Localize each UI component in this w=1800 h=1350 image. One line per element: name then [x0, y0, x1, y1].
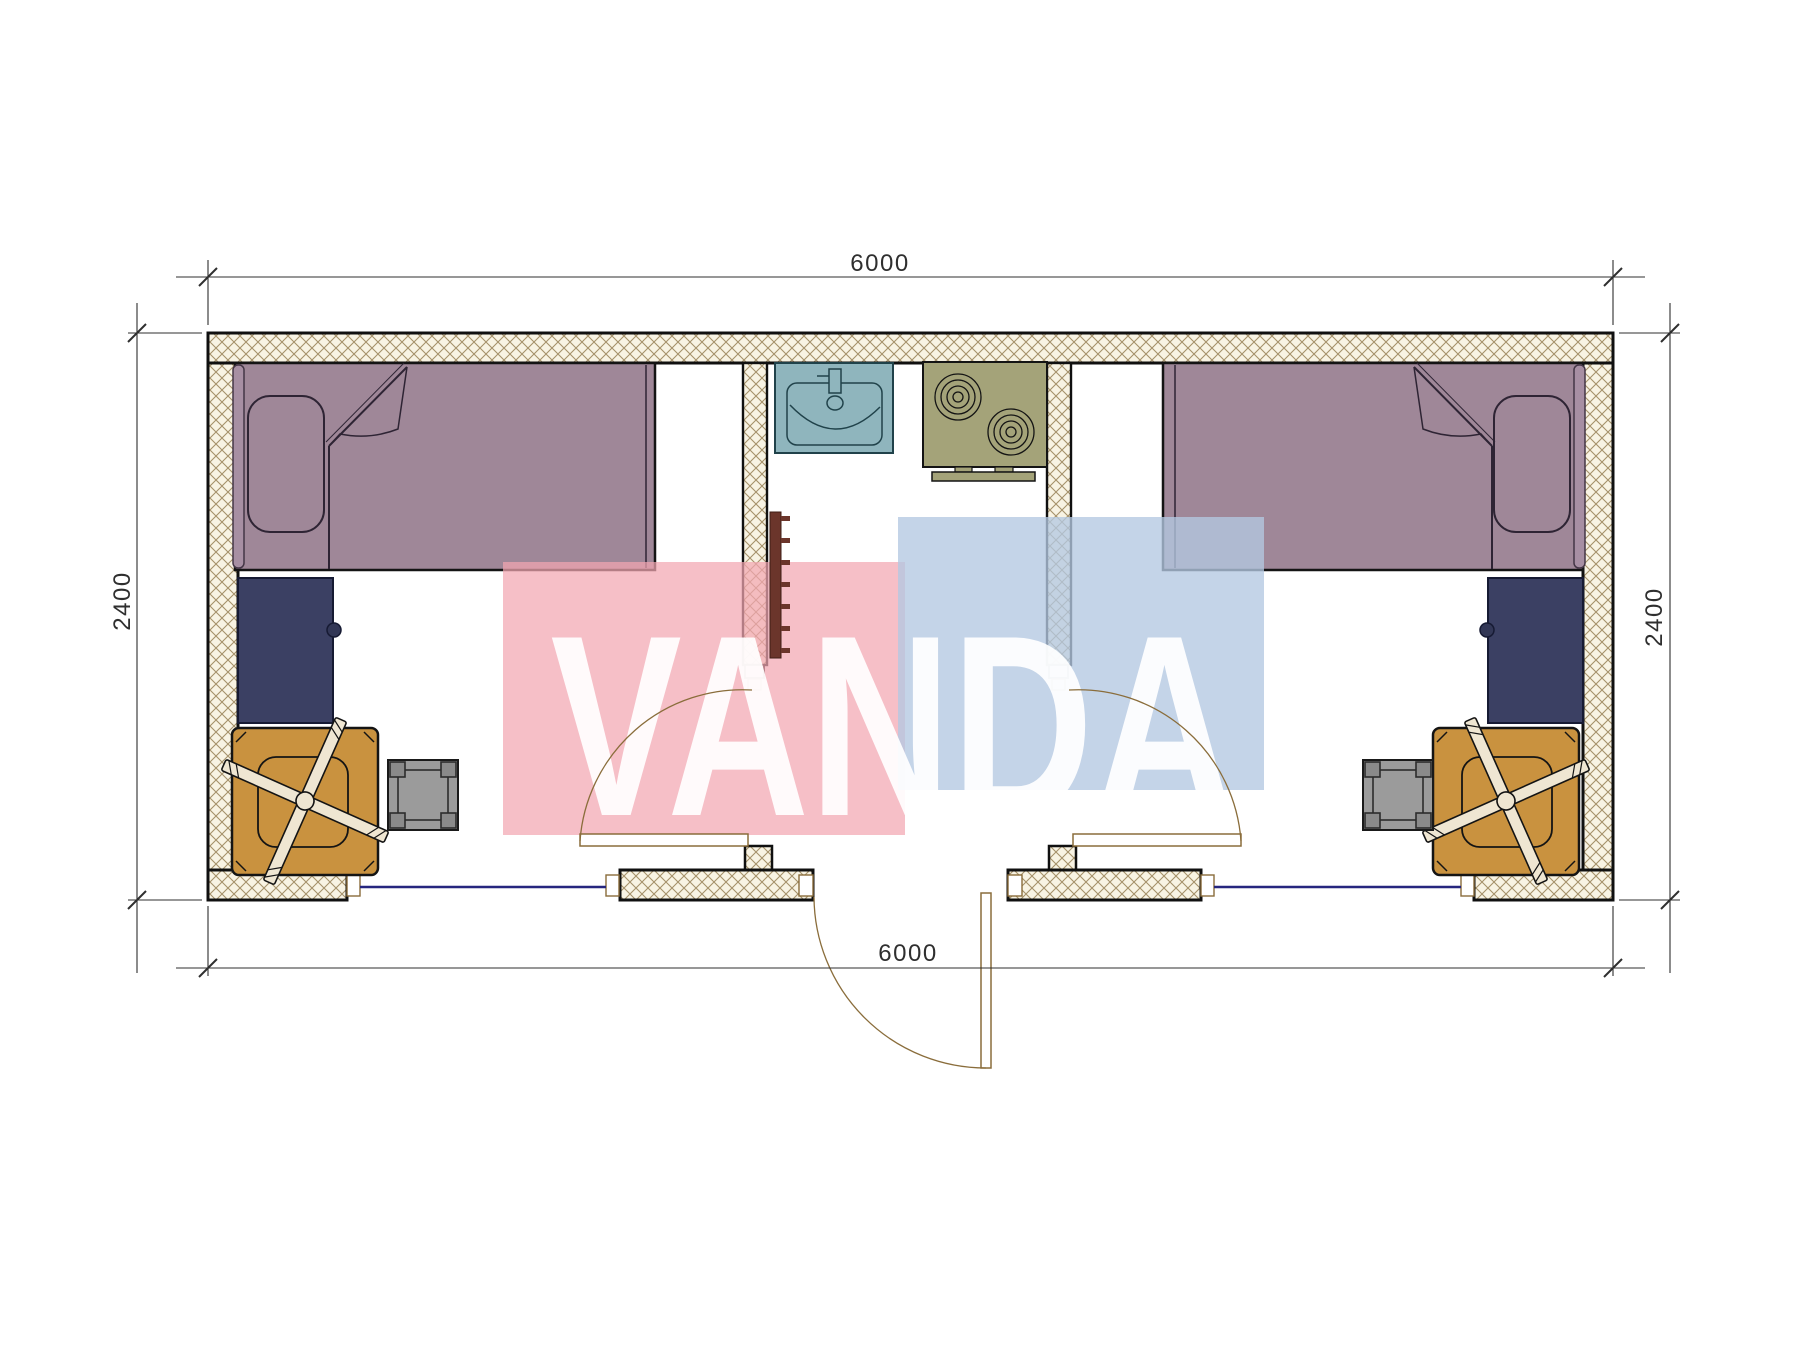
watermark: VANDA [503, 517, 1264, 870]
desk-knob-left [327, 623, 341, 637]
dimension-label-bottom: 6000 [878, 940, 937, 967]
headboard-left [233, 365, 244, 568]
entrance-door [814, 893, 991, 1068]
door-leaf-right [1073, 834, 1241, 846]
stool-right [1363, 760, 1433, 830]
floor-plan-canvas: VANDA [0, 0, 1800, 1350]
watermark-text: VANDA [551, 581, 1236, 870]
faucet-icon [829, 369, 841, 393]
bed-left [233, 363, 655, 570]
wall-bottom-pier-left [620, 870, 813, 900]
stove [923, 362, 1047, 481]
door-leaf-left [580, 834, 748, 846]
wall-top [208, 333, 1613, 363]
dimension-label-left: 2400 [109, 571, 136, 630]
wall-bottom-pier-right [1008, 870, 1201, 900]
sink [775, 363, 893, 453]
entrance-door-leaf [981, 893, 991, 1068]
dimension-label-right: 2400 [1641, 587, 1668, 646]
stool-left [388, 760, 458, 830]
desk-right [1480, 578, 1583, 723]
desk-left [238, 578, 341, 723]
dimension-label-top: 6000 [850, 250, 909, 277]
stove-panel [932, 472, 1035, 481]
floor-plan-drawing: VANDA [0, 0, 1800, 1350]
windows [347, 875, 1474, 896]
wall-right [1583, 333, 1613, 900]
entrance-door-swing-arc [814, 897, 986, 1068]
headboard-right [1574, 365, 1585, 568]
desk-knob-right [1480, 623, 1494, 637]
